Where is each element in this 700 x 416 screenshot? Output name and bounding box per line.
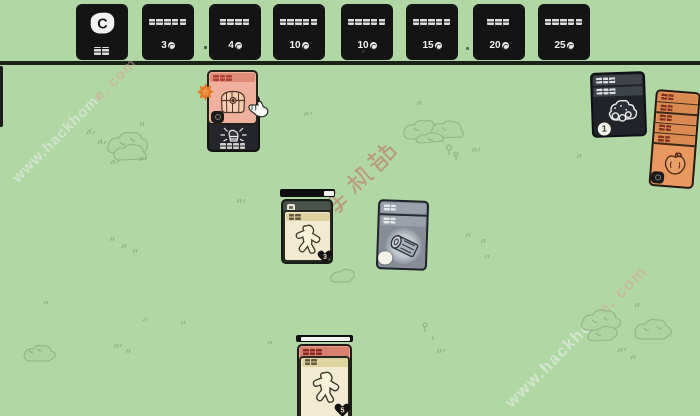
svg-text:C: C: [97, 16, 107, 32]
svg-text:5: 5: [340, 405, 344, 414]
svg-text:3: 3: [323, 254, 327, 261]
